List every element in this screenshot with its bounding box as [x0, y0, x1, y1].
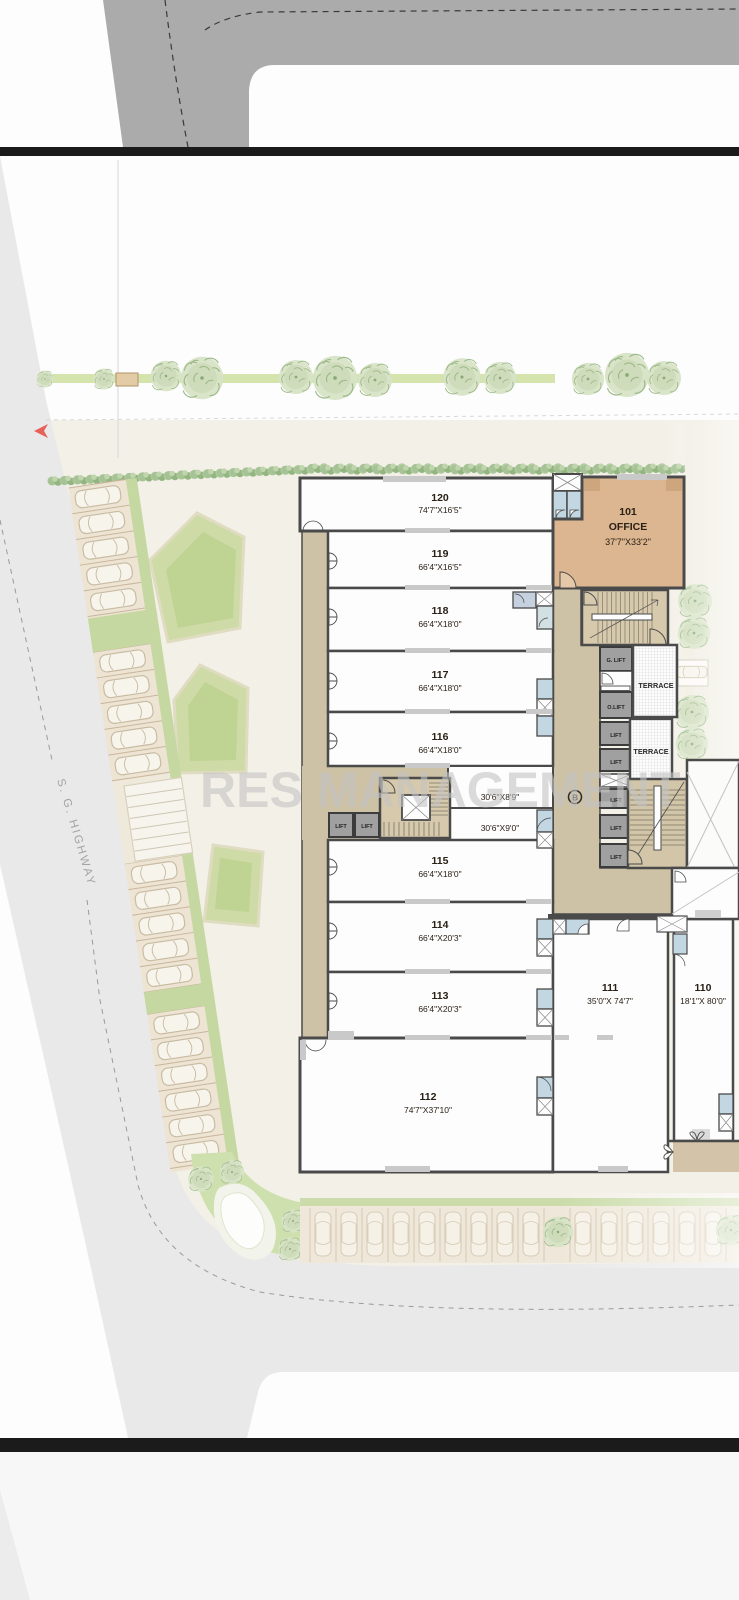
- svg-text:66'4"X18'0": 66'4"X18'0": [418, 619, 461, 629]
- svg-text:LIFT: LIFT: [610, 733, 622, 739]
- svg-text:30'6"X9'0": 30'6"X9'0": [481, 823, 520, 833]
- svg-text:110: 110: [695, 982, 712, 994]
- svg-text:111: 111: [602, 982, 619, 994]
- svg-text:LIFT: LIFT: [361, 824, 373, 830]
- svg-text:113: 113: [432, 990, 449, 1002]
- svg-text:115: 115: [432, 855, 449, 867]
- svg-text:66'4"X18'0": 66'4"X18'0": [418, 869, 461, 879]
- svg-text:119: 119: [432, 548, 449, 560]
- svg-text:TERRACE: TERRACE: [633, 747, 668, 756]
- svg-text:LIFT: LIFT: [610, 826, 622, 832]
- svg-text:G. LIFT: G. LIFT: [607, 658, 627, 664]
- svg-text:O.LIFT: O.LIFT: [607, 705, 625, 711]
- svg-text:66'4"X18'0": 66'4"X18'0": [418, 745, 461, 755]
- svg-text:18'1"X 80'0": 18'1"X 80'0": [680, 996, 726, 1006]
- svg-text:37'7"X33'2": 37'7"X33'2": [605, 537, 651, 547]
- svg-text:101: 101: [619, 506, 637, 518]
- svg-text:35'0"X 74'7": 35'0"X 74'7": [587, 996, 633, 1006]
- svg-text:114: 114: [432, 919, 449, 931]
- svg-text:OFFICE: OFFICE: [609, 521, 648, 533]
- svg-text:74'7"X37'10": 74'7"X37'10": [404, 1105, 452, 1115]
- svg-text:112: 112: [420, 1091, 437, 1103]
- svg-text:LIFT: LIFT: [335, 824, 347, 830]
- svg-text:74'7"X16'5": 74'7"X16'5": [418, 505, 461, 515]
- svg-text:66'4"X20'3": 66'4"X20'3": [418, 933, 461, 943]
- svg-text:66'4"X18'0": 66'4"X18'0": [418, 683, 461, 693]
- svg-text:120: 120: [431, 492, 449, 504]
- svg-text:66'4"X16'5": 66'4"X16'5": [418, 562, 461, 572]
- svg-text:116: 116: [432, 731, 449, 743]
- svg-text:LIFT: LIFT: [610, 855, 622, 861]
- svg-text:66'4"X20'3": 66'4"X20'3": [418, 1004, 461, 1014]
- svg-text:TERRACE: TERRACE: [638, 681, 673, 690]
- svg-text:117: 117: [432, 669, 449, 681]
- svg-text:RES MANAGEMENT: RES MANAGEMENT: [200, 762, 681, 818]
- svg-text:118: 118: [432, 605, 449, 617]
